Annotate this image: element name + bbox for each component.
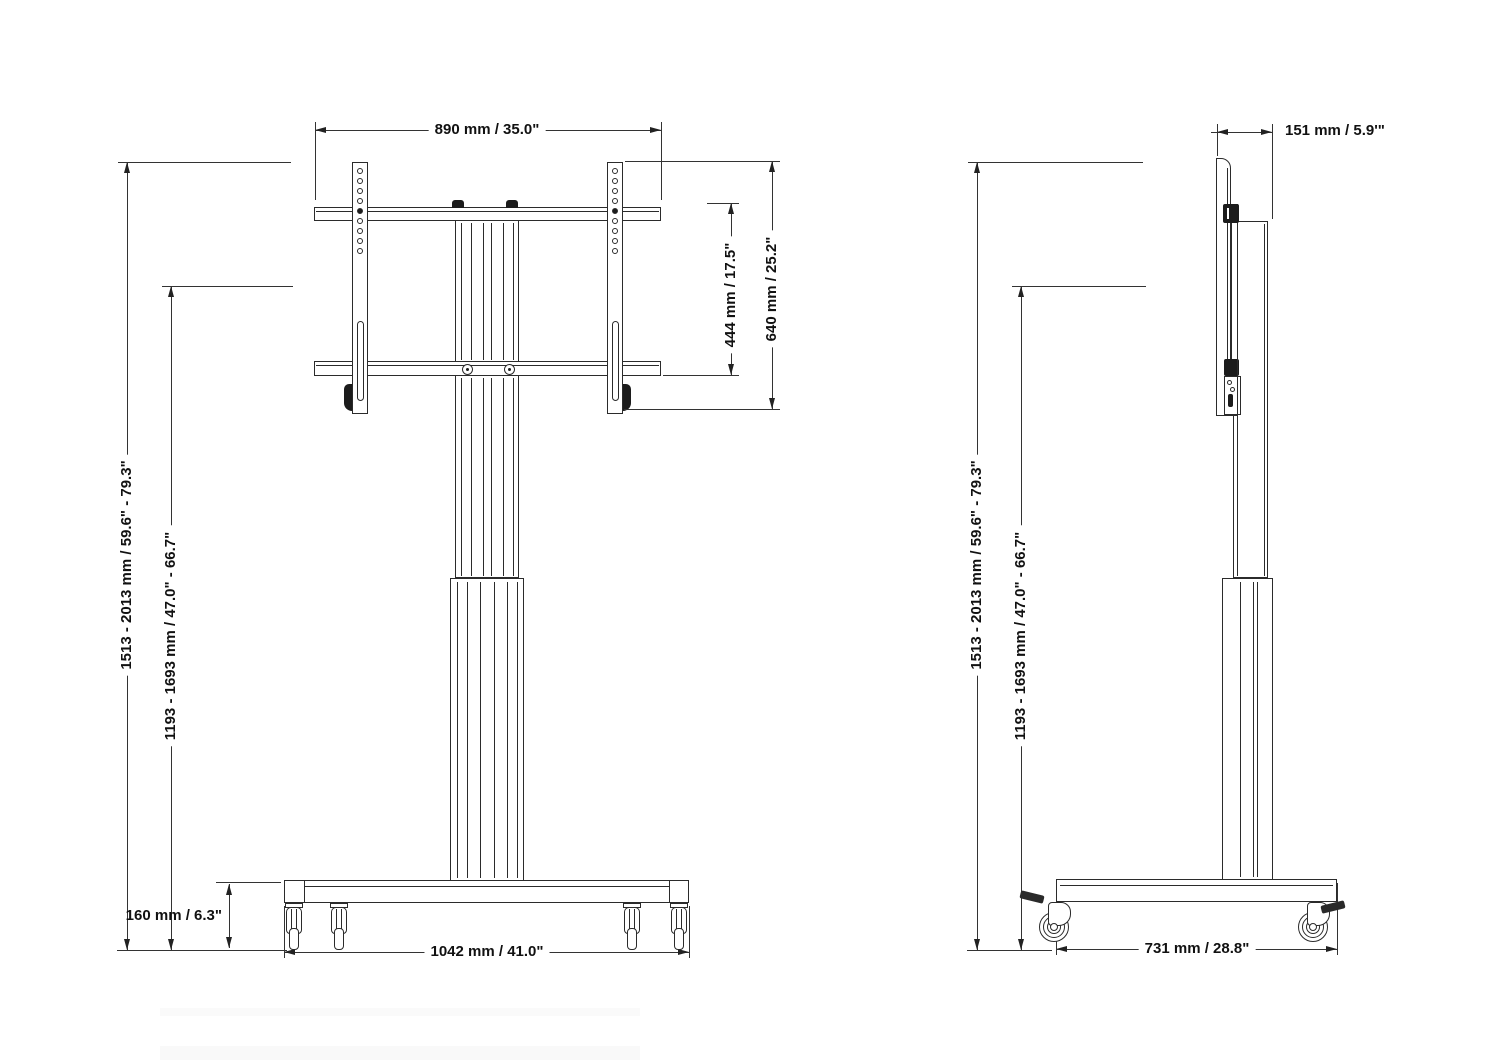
dim-front-bracket-arrow-top: [728, 203, 734, 214]
dim-side-basedepth-arrow-left: [1056, 946, 1067, 952]
column-groove-line: [461, 378, 462, 576]
dim-side-center-arrow-bottom: [1018, 939, 1024, 950]
front-top-screw-left: [452, 200, 464, 208]
front-lower-screw-right-dot: [508, 368, 511, 371]
dim-front-width-arrow-left: [315, 127, 326, 133]
side-ground-ext-line: [967, 950, 1052, 951]
front-base-beam: [284, 880, 689, 903]
column-groove-line: [471, 378, 472, 576]
side-plate-screw-2: [1230, 387, 1235, 392]
front-caster-wheel: [289, 928, 299, 950]
dim-front-mount-ext-bottom: [624, 409, 780, 410]
front-base-divider-left: [304, 881, 305, 902]
dim-front-width-ext-left: [315, 122, 316, 200]
vesa-hole: [357, 208, 363, 214]
side-caster-brake-lever: [1019, 890, 1044, 904]
vesa-hole: [357, 168, 363, 174]
dim-side-depth-ext-right: [1272, 124, 1273, 219]
dim-front-width-arrow-right: [650, 127, 661, 133]
vesa-hole: [357, 238, 363, 244]
vesa-hole: [612, 208, 618, 214]
dim-front-center-arrow-top: [168, 286, 174, 297]
column-groove-line: [461, 223, 462, 360]
dim-front-overall-label: 1513 - 2013 mm / 59.6" - 79.3": [118, 454, 137, 675]
vesa-hole: [612, 168, 618, 174]
vesa-hole: [357, 218, 363, 224]
front-caster-wheel: [674, 928, 684, 950]
dim-side-center-arrow-top: [1018, 286, 1024, 297]
column-groove-line: [491, 378, 492, 576]
watermark-band-1: [160, 1008, 640, 1016]
side-caster-hub: [1050, 923, 1058, 931]
dim-side-basedepth-label: 731 mm / 28.8": [1139, 940, 1256, 959]
dim-side-depth-ext-left: [1217, 124, 1218, 156]
vesa-hole: [612, 218, 618, 224]
column-groove-line: [483, 378, 484, 576]
dim-side-basedepth-arrow-right: [1326, 946, 1337, 952]
dim-front-baseheight-ext-top: [216, 882, 281, 883]
vesa-hole: [612, 238, 618, 244]
column-groove-line: [471, 223, 472, 360]
dim-front-center-label: 1193 - 1693 mm / 47.0" - 66.7": [162, 526, 181, 747]
column-groove-line: [467, 582, 468, 878]
front-lower-screw-left-dot: [466, 368, 469, 371]
vesa-hole: [357, 248, 363, 254]
column-groove-line: [517, 582, 518, 878]
dim-front-baseheight-label: 160 mm / 6.3": [124, 907, 224, 926]
dim-front-overall-ext-top: [118, 162, 291, 163]
side-base: [1056, 879, 1337, 902]
front-outer-column: [450, 578, 524, 882]
side-base-flange-line: [1060, 885, 1333, 886]
column-groove-line: [457, 582, 458, 878]
watermark-band-2: [160, 1046, 640, 1060]
dim-front-mount-ext-top: [625, 161, 780, 162]
dim-front-bracket-label: 444 mm / 17.5": [722, 237, 741, 354]
dim-front-overall-arrow-top: [124, 162, 130, 173]
column-groove-line: [503, 378, 504, 576]
front-base-divider-right: [669, 881, 670, 902]
dim-front-baseheight-arrow-top: [226, 884, 232, 895]
dim-side-depth-arrow-left: [1217, 129, 1228, 135]
side-plate-screw-1: [1227, 380, 1232, 385]
dim-front-center-arrow-bottom: [168, 939, 174, 950]
column-groove-line: [1257, 582, 1258, 877]
dim-front-basewidth-label: 1042 mm / 41.0": [424, 943, 549, 962]
dim-front-bracket-ext-bottom: [663, 375, 739, 376]
front-vesa-slot-right: [612, 321, 619, 401]
column-groove-line: [513, 223, 514, 360]
dim-side-center-label: 1193 - 1693 mm / 47.0" - 66.7": [1012, 526, 1031, 747]
column-groove-line: [1240, 582, 1241, 877]
column-groove-line: [1264, 224, 1265, 576]
front-top-screw-right: [506, 200, 518, 208]
vesa-hole: [357, 188, 363, 194]
dim-side-depth-label: 151 mm / 5.9'": [1283, 122, 1387, 141]
column-groove-line: [1253, 582, 1254, 877]
column-groove-line: [483, 223, 484, 360]
vesa-hole: [357, 178, 363, 184]
dim-front-width-label: 890 mm / 35.0": [429, 121, 546, 140]
dim-front-bracket-arrow-bottom: [728, 364, 734, 375]
dim-front-bracket-ext-top: [707, 203, 739, 204]
dim-side-overall-ext-top: [968, 162, 1143, 163]
dim-side-depth-arrow-right: [1261, 129, 1272, 135]
vesa-hole: [612, 178, 618, 184]
dim-side-overall-label: 1513 - 2013 mm / 59.6" - 79.3": [968, 454, 987, 675]
front-vesa-slot-left: [357, 321, 364, 401]
vesa-hole: [357, 198, 363, 204]
front-hook-right: [622, 384, 631, 411]
front-inner-column: [455, 207, 519, 578]
column-groove-line: [507, 582, 508, 878]
vesa-hole: [612, 188, 618, 194]
column-groove-line: [480, 582, 481, 878]
dim-side-center-ext-top: [1012, 286, 1146, 287]
dim-front-mount-arrow-bottom: [769, 398, 775, 409]
vesa-hole: [612, 198, 618, 204]
column-groove-line: [503, 223, 504, 360]
front-caster-wheel: [627, 928, 637, 950]
technical-drawing-canvas: 890 mm / 35.0" 444 mm / 17.5" 640 mm / 2…: [0, 0, 1500, 1062]
dim-front-basewidth-ext-left: [284, 906, 285, 958]
front-base-flange-line: [305, 886, 669, 887]
column-groove-line: [513, 378, 514, 576]
dim-front-baseheight-arrow-bottom: [226, 937, 232, 948]
front-caster-wheel: [334, 928, 344, 950]
side-plate-slot: [1228, 394, 1233, 407]
dim-front-overall-arrow-bottom: [124, 939, 130, 950]
side-caster-hub: [1309, 923, 1317, 931]
dim-front-basewidth-ext-right: [689, 906, 690, 958]
column-groove-line: [494, 582, 495, 878]
dim-side-overall-arrow-bottom: [974, 939, 980, 950]
side-outer-column: [1222, 578, 1273, 882]
dim-front-center-ext-top: [162, 286, 293, 287]
dim-front-mount-arrow-top: [769, 161, 775, 172]
column-groove-line: [1237, 224, 1238, 576]
vesa-hole: [612, 228, 618, 234]
side-top-hook: [1223, 204, 1239, 223]
vesa-hole: [357, 228, 363, 234]
dim-front-mount-label: 640 mm / 25.2": [763, 231, 782, 348]
dim-side-basedepth-ext-right: [1337, 883, 1338, 955]
column-groove-line: [491, 223, 492, 360]
front-ground-ext-line: [117, 950, 287, 951]
vesa-hole: [612, 248, 618, 254]
side-top-hook-notch: [1227, 208, 1229, 219]
dim-side-overall-arrow-top: [974, 162, 980, 173]
